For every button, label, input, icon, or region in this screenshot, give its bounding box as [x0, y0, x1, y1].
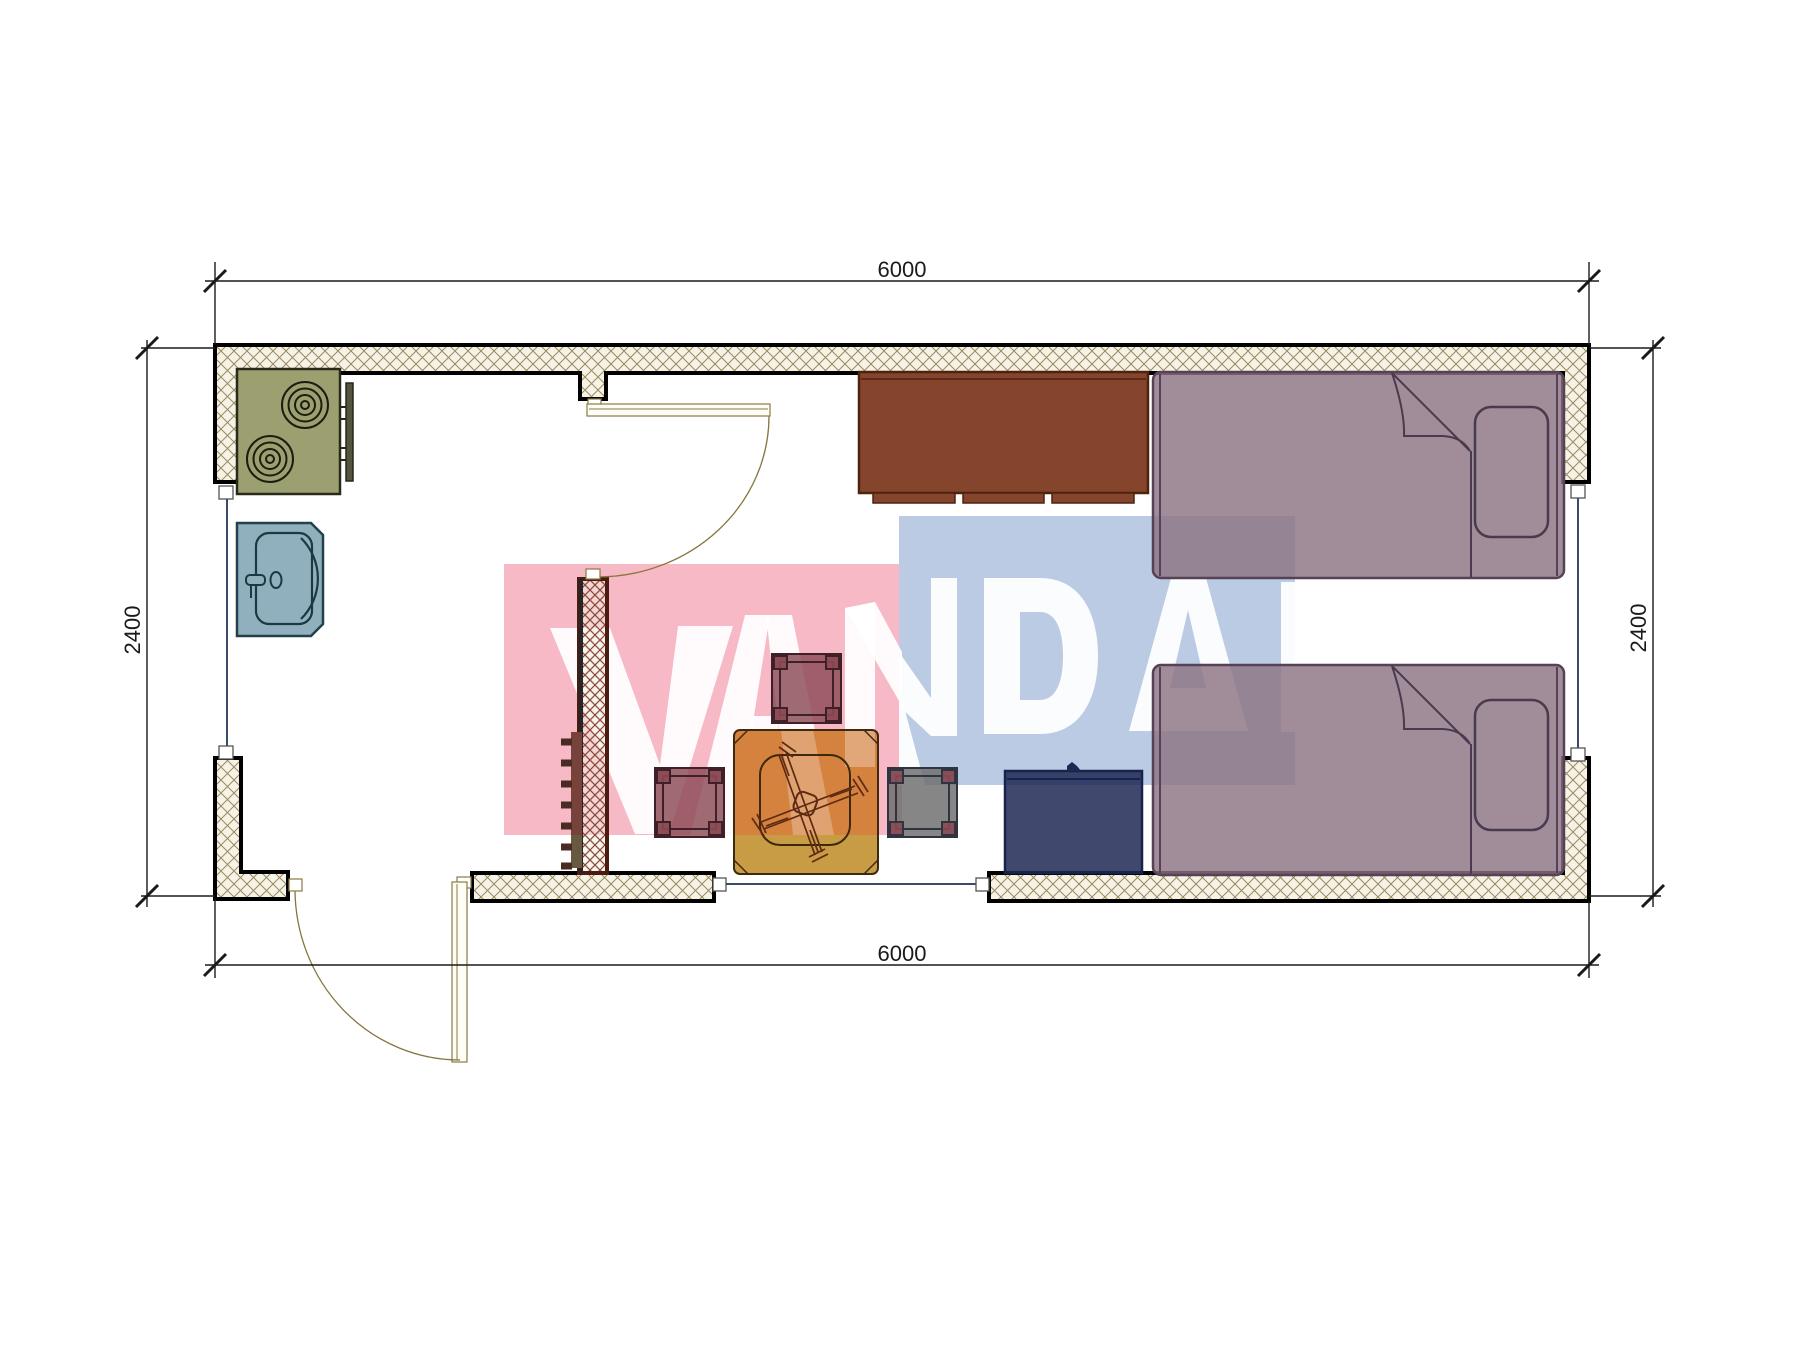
svg-text:6000: 6000 [878, 941, 927, 966]
svg-text:2400: 2400 [1626, 604, 1651, 653]
svg-text:6000: 6000 [878, 257, 927, 282]
svg-text:2400: 2400 [120, 606, 145, 655]
